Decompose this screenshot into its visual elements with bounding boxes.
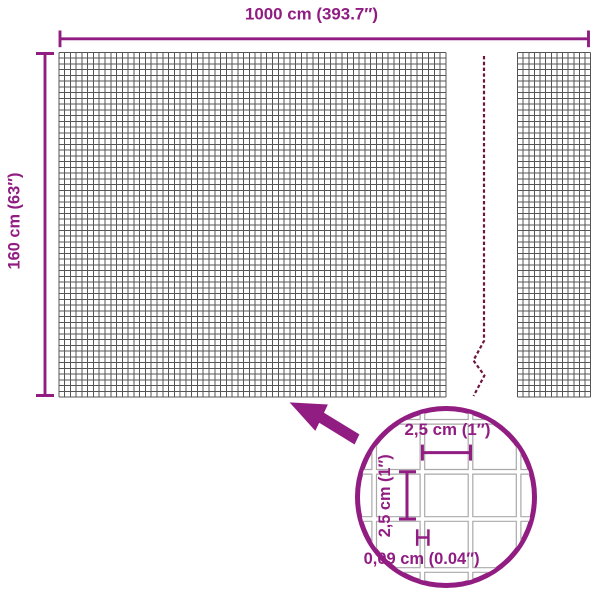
svg-text:0,09 cm (0.04″): 0,09 cm (0.04″) [364,549,480,568]
svg-text:160 cm (63″): 160 cm (63″) [6,173,24,270]
svg-text:2,5 cm (1″): 2,5 cm (1″) [405,420,491,439]
svg-text:1000 cm (393.7″): 1000 cm (393.7″) [245,6,378,24]
svg-text:2,5 cm (1″): 2,5 cm (1″) [375,454,394,537]
